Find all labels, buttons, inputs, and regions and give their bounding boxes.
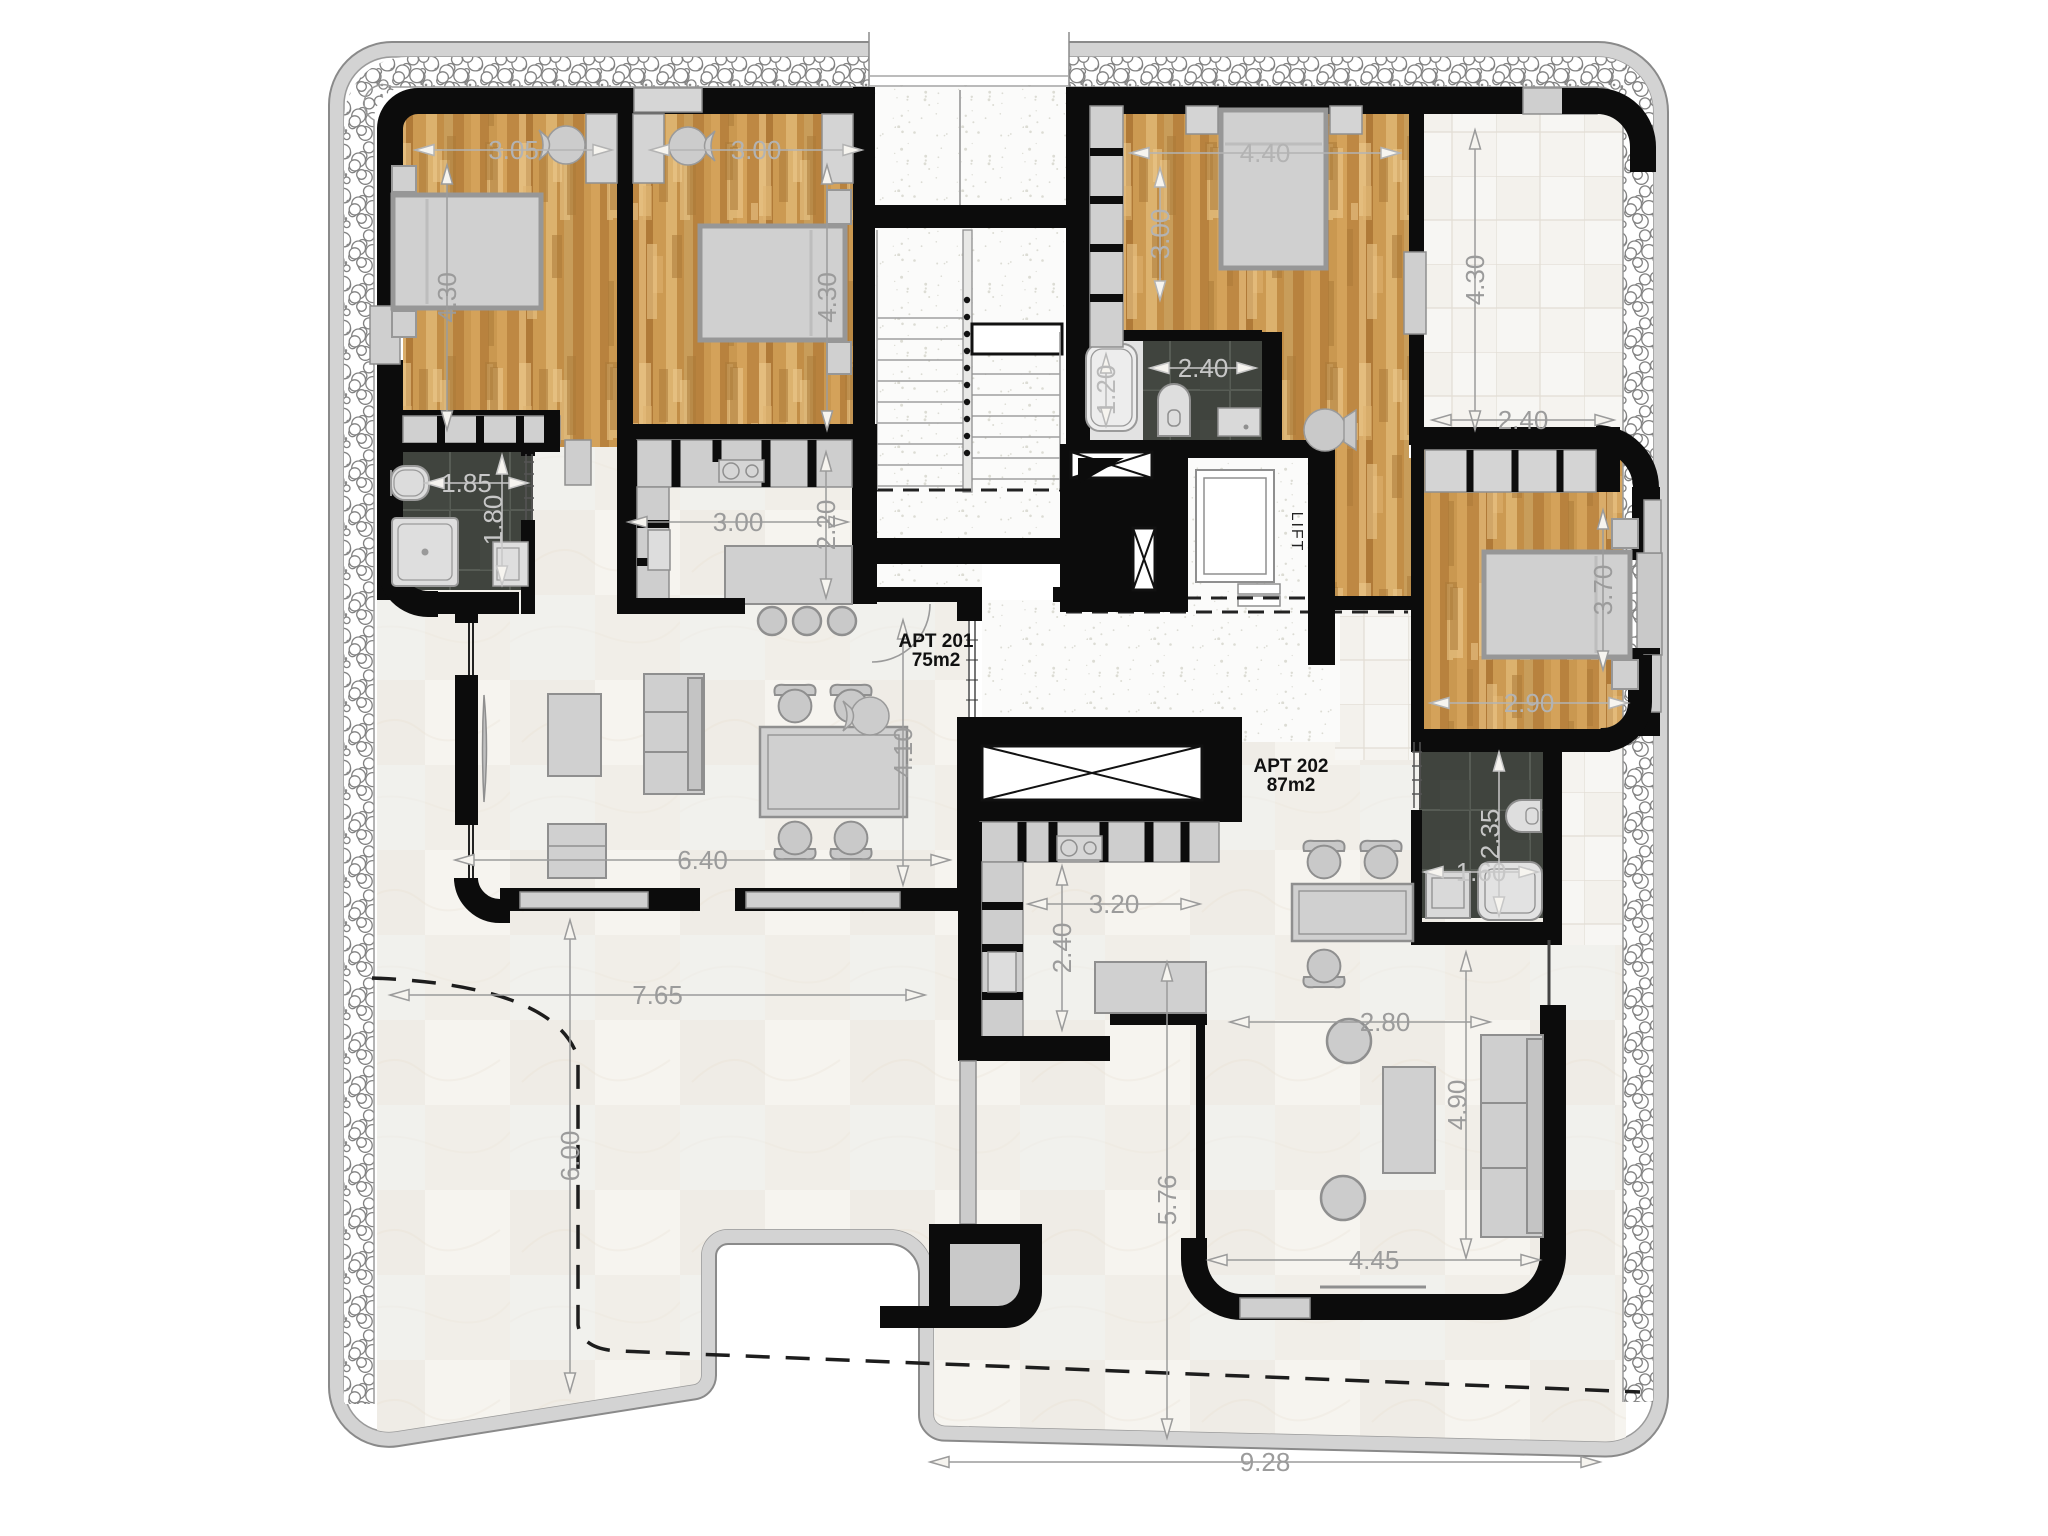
svg-text:9.28: 9.28 [1240, 1447, 1291, 1477]
svg-text:4.45: 4.45 [1349, 1245, 1400, 1275]
svg-text:4.30: 4.30 [432, 272, 462, 323]
svg-text:APT 201: APT 201 [899, 631, 974, 652]
svg-text:3.05: 3.05 [488, 135, 539, 165]
svg-text:APT 202: APT 202 [1254, 756, 1329, 777]
svg-text:1.85: 1.85 [441, 468, 492, 498]
svg-text:3.00: 3.00 [1145, 209, 1175, 260]
svg-text:3.00: 3.00 [731, 135, 782, 165]
svg-text:2.40: 2.40 [1178, 353, 1229, 383]
svg-text:2.40: 2.40 [1047, 923, 1077, 974]
svg-text:1.80: 1.80 [478, 495, 508, 546]
svg-text:4.30: 4.30 [1460, 255, 1490, 306]
svg-text:3.70: 3.70 [1588, 565, 1618, 616]
svg-text:87m2: 87m2 [1267, 775, 1316, 796]
svg-text:3.00: 3.00 [713, 507, 764, 537]
svg-text:6.40: 6.40 [677, 845, 728, 875]
svg-text:4.90: 4.90 [1442, 1080, 1472, 1131]
svg-text:2.35: 2.35 [1475, 809, 1505, 860]
svg-text:7.65: 7.65 [632, 980, 683, 1010]
svg-text:1.60: 1.60 [1456, 857, 1507, 887]
svg-text:75m2: 75m2 [912, 650, 961, 671]
svg-text:3.20: 3.20 [1089, 889, 1140, 919]
svg-text:6.00: 6.00 [555, 1131, 585, 1182]
svg-text:2.20: 2.20 [811, 500, 841, 551]
svg-text:2.80: 2.80 [1360, 1007, 1411, 1037]
svg-text:1.20: 1.20 [1091, 365, 1121, 416]
svg-text:2.90: 2.90 [1504, 688, 1555, 718]
svg-text:4.40: 4.40 [1240, 138, 1291, 168]
svg-text:2.40: 2.40 [1498, 405, 1549, 435]
svg-text:5.76: 5.76 [1152, 1175, 1182, 1226]
svg-text:4.30: 4.30 [812, 272, 842, 323]
svg-text:4.10: 4.10 [888, 727, 918, 778]
svg-text:LIFT: LIFT [1288, 512, 1305, 553]
